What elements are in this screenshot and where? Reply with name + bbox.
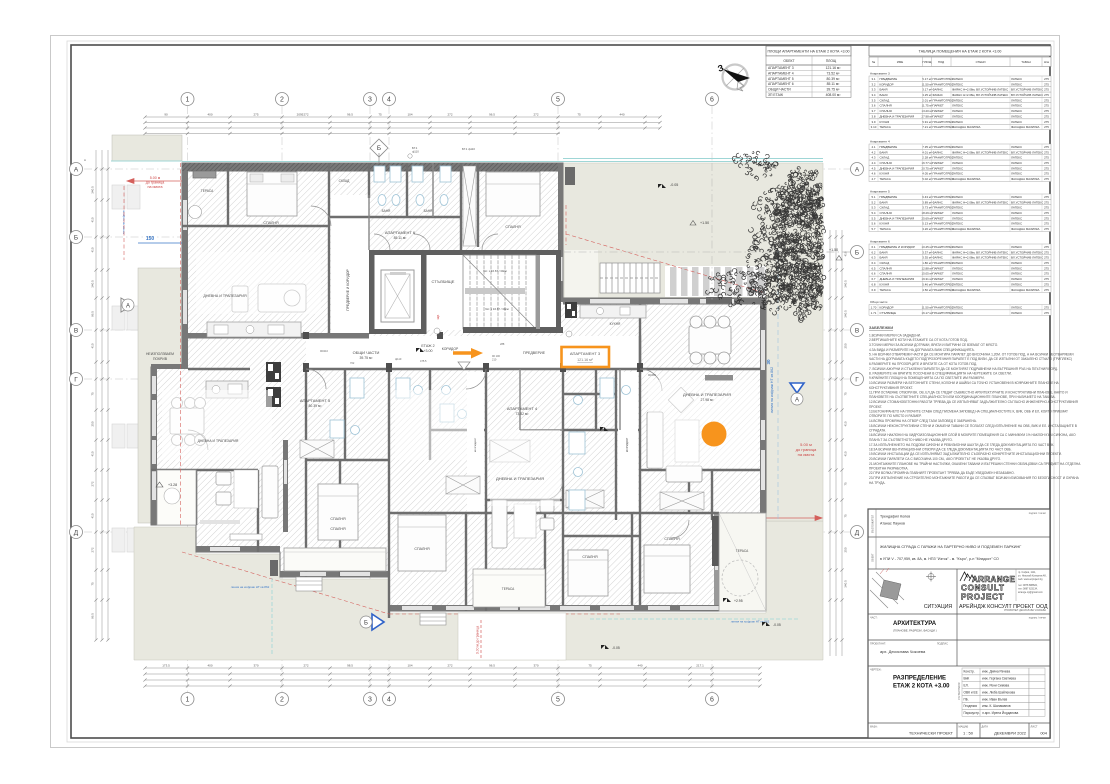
svg-text:6.1: 6.1 (871, 245, 875, 249)
svg-text:ФАЯНС: ФАЯНС (933, 150, 943, 154)
svg-text:Б: Б (377, 145, 381, 152)
svg-text:1: 1 (186, 97, 190, 104)
svg-text:16.ВСИЧКИ НАКЛОНИ НА ХИДРОИЗОЛ: 16.ВСИЧКИ НАКЛОНИ НА ХИДРОИЗОЛАЦИОННИЯ С… (869, 433, 1076, 437)
svg-text:1 : 50: 1 : 50 (963, 731, 974, 736)
svg-text:ЛАТЕКС: ЛАТЕКС (952, 120, 963, 124)
svg-text:ТЕРАСА: ТЕРАСА (736, 549, 749, 553)
svg-text:ДНЕВНА И ТРАПЕЗАРИЯ: ДНЕВНА И ТРАПЕЗАРИЯ (880, 216, 915, 220)
svg-text:ПОД: ПОД (938, 60, 944, 64)
svg-text:-0.05: -0.05 (612, 646, 620, 650)
svg-text:ГРАНИТОГРЕС: ГРАНИТОГРЕС (933, 77, 954, 81)
svg-text:11.ПРИ ОСТАВЯНЕ ОТВОРИ ВК, ОВ,: 11.ПРИ ОСТАВЯНЕ ОТВОРИ ВК, ОВ, ЕЛ ДА СЕ … (869, 391, 1068, 395)
svg-text:ЛАТЕКС: ЛАТЕКС (1011, 195, 1022, 199)
svg-text:АПАРТАМЕНТ 4: АПАРТАМЕНТ 4 (507, 406, 538, 411)
svg-text:5.02 м²: 5.02 м² (922, 177, 931, 181)
svg-text:ДНЕВНА И ТРАПЕЗАРИЯ: ДНЕВНА И ТРАПЕЗАРИЯ (880, 114, 915, 118)
svg-text:+1.50: +1.50 (829, 248, 838, 252)
svg-text:ЛАТЕКС: ЛАТЕКС (1011, 82, 1022, 86)
svg-text:410: 410 (91, 451, 95, 456)
svg-text:6.РАЗМЕРИТЕ НА ПРОЗОРЦИТЕ И ВР: 6.РАЗМЕРИТЕ НА ПРОЗОРЦИТЕ И ВРАТИТЕ СА О… (869, 362, 977, 366)
svg-text:250: 250 (844, 547, 848, 552)
svg-text:150: 150 (146, 236, 155, 242)
svg-text:121.16 м²: 121.16 м² (577, 358, 593, 362)
svg-text:ПАРКЕТ: ПАРКЕТ (933, 266, 945, 270)
svg-text:НЕИЗПОЛЗВАЕМ: НЕИЗПОЛЗВАЕМ (146, 352, 174, 356)
svg-text:275: 275 (1044, 145, 1049, 149)
svg-text:272: 272 (91, 481, 95, 486)
svg-text:8. РАЗМЕРИТЕ НА ВРАТИТЕ ПОСОЧЕ: 8. РАЗМЕРИТЕ НА ВРАТИТЕ ПОСОЧЕНИ В СПЕЦИ… (869, 372, 1012, 376)
svg-text:ПЛАНОВЕТЕ НА СЪОТВЕТНИТЕ СПЕЦИ: ПЛАНОВЕТЕ НА СЪОТВЕТНИТЕ СПЕЦИАЛНОСТИ ИЛ… (869, 395, 1056, 399)
svg-text:475.5: 475.5 (420, 359, 427, 363)
svg-text:ВЛ.УСТОЙЧИВ ЛАТЕКС: ВЛ.УСТОЙЧИВ ЛАТЕКС (1011, 200, 1043, 204)
svg-text:ПРЕДВЕРИЕ: ПРЕДВЕРИЕ (880, 77, 898, 81)
svg-text:7. ВСИЧКИ АЖУРНИ И СТЪКЛЕНИ ПА: 7. ВСИЧКИ АЖУРНИ И СТЪКЛЕНИ ПАРАПЕТИ ДА … (869, 367, 1058, 371)
svg-text:-0.05: -0.05 (670, 183, 678, 187)
svg-text:ГРАНИТОГРЕС: ГРАНИТОГРЕС (933, 195, 954, 199)
svg-text:Г: Г (74, 377, 78, 384)
svg-text:4.3: 4.3 (871, 156, 875, 160)
svg-text:КУХНЯ: КУХНЯ (880, 282, 890, 286)
svg-text:СПАЛНЯ: СПАЛНЯ (263, 221, 279, 225)
svg-text:20.ВСИЧКИ ПАРАПЕТИ СА С ВИСОЧИ: 20.ВСИЧКИ ПАРАПЕТИ СА С ВИСОЧИНА 100 СМ.… (869, 457, 1001, 461)
svg-text:400: 400 (207, 664, 212, 668)
svg-text:272: 272 (533, 113, 538, 117)
svg-text:АПАРТАМЕНТ 5: АПАРТАМЕНТ 5 (300, 398, 331, 403)
svg-text:96.5: 96.5 (347, 113, 353, 117)
svg-text:250: 250 (844, 343, 848, 348)
svg-text:ПАРКЕТ: ПАРКЕТ (933, 216, 945, 220)
svg-text:275: 275 (1044, 245, 1049, 249)
svg-text:ДНЕВНА И ТРАПЕЗАРИЯ: ДНЕВНА И ТРАПЕЗАРИЯ (198, 439, 239, 443)
svg-text:1.71: 1.71 (871, 311, 877, 315)
svg-text:75: 75 (844, 514, 848, 518)
svg-text:11.75 м²: 11.75 м² (922, 104, 933, 108)
svg-text:БАНЯ: БАНЯ (880, 88, 888, 92)
svg-text:ДЕКЕМВРИ 2022: ДЕКЕМВРИ 2022 (994, 731, 1027, 736)
svg-text:5.13 м²: 5.13 м² (922, 222, 931, 226)
svg-text:75: 75 (844, 482, 848, 486)
svg-text:ГРАНИТОГРЕС: ГРАНИТОГРЕС (933, 288, 954, 292)
svg-text:БГ.1 ф110: БГ.1 ф110 (462, 147, 475, 151)
svg-text:16.77 м²: 16.77 м² (922, 161, 933, 165)
svg-text:ЛАТЕКС: ЛАТЕКС (952, 305, 963, 309)
svg-text:№: № (872, 60, 875, 64)
svg-text:702: 702 (350, 361, 355, 365)
svg-text:ЛАТЕКС: ЛАТЕКС (952, 311, 963, 315)
svg-text:ПРЕДВЕРИЕ: ПРЕДВЕРИЕ (523, 351, 546, 355)
svg-text:30: 30 (766, 359, 771, 365)
svg-text:ПАРКЕТ: ПАРКЕТ (933, 104, 945, 108)
svg-text:370: 370 (533, 664, 538, 668)
svg-text:ДНЕВНА И ТРАПЕЗАРИЯ: ДНЕВНА И ТРАПЕЗАРИЯ (683, 392, 731, 397)
svg-text:275: 275 (1044, 172, 1049, 176)
svg-text:+2.95: +2.95 (734, 599, 743, 603)
svg-text:ДНЕВНА И ТРАПЕЗАРИЯ: ДНЕВНА И ТРАПЕЗАРИЯ (880, 277, 915, 281)
svg-text:ЛАТЕКС: ЛАТЕКС (1011, 172, 1022, 176)
svg-text:СИТУАЦИЯ: СИТУАЦИЯ (924, 604, 953, 610)
svg-text:275: 275 (1044, 114, 1049, 118)
svg-text:СГРАДАТА.: СГРАДАТА. (869, 429, 886, 433)
svg-text:подпис / печат: подпис / печат (1029, 616, 1047, 620)
svg-text:75: 75 (378, 113, 382, 117)
svg-text:272: 272 (303, 113, 308, 117)
svg-text:ГРАНИТОГРЕС: ГРАНИТОГРЕС (933, 82, 954, 86)
svg-text:98.5: 98.5 (347, 664, 353, 668)
svg-text:16.17 м²: 16.17 м² (922, 311, 933, 315)
svg-text:ПЛАНЪТ ЗА СЪОТВЕТНОТО НИВО НЕ: ПЛАНЪТ ЗА СЪОТВЕТНОТО НИВО НЕ УКАЗВА ДРУ… (869, 438, 953, 442)
svg-text:5: 5 (556, 697, 560, 704)
svg-text:ФАЯНС: ФАЯНС (933, 256, 943, 260)
svg-text:275: 275 (1044, 261, 1049, 265)
svg-text:ЕТАЖ 2: ЕТАЖ 2 (421, 344, 434, 348)
svg-text:ПЛОЩИ АПАРТАМЕНТИ НА ЕТАЖ 2 К: ПЛОЩИ АПАРТАМЕНТИ НА ЕТАЖ 2 КОТА +3.00 (767, 50, 849, 54)
svg-text:ЛАТЕКС: ЛАТЕКС (952, 216, 963, 220)
svg-text:ОТВОРИТЕ ПО МЯСТО И РАЗМЕР.: ОТВОРИТЕ ПО МЯСТО И РАЗМЕР. (869, 414, 922, 418)
svg-text:370: 370 (253, 664, 258, 668)
svg-text:ФАСАДНА МАЗИЛКА: ФАСАДНА МАЗИЛКА (1011, 288, 1040, 292)
svg-text:РАЗПРЕДЕЛЕНИЕ: РАЗПРЕДЕЛЕНИЕ (893, 676, 946, 682)
svg-text:15.05 м²: 15.05 м² (922, 272, 933, 276)
svg-text:СПАЛНЯ: СПАЛНЯ (330, 517, 346, 521)
svg-text:ФАЯНС: ФАЯНС (933, 250, 943, 254)
svg-text:АРХИТЕКТУРА: АРХИТЕКТУРА (893, 621, 937, 627)
svg-text:5.46 м²: 5.46 м² (922, 282, 931, 286)
svg-text:4.6: 4.6 (871, 172, 875, 176)
svg-text:90 100: 90 100 (492, 354, 500, 358)
svg-text:ГРАНИТОГРЕС: ГРАНИТОГРЕС (933, 282, 954, 286)
svg-text:ТЕРАСА: ТЕРАСА (880, 227, 891, 231)
svg-text:73.52 м²: 73.52 м² (827, 71, 841, 75)
svg-text:410: 410 (844, 421, 848, 426)
svg-text:инж. Рени Симова: инж. Рени Симова (982, 684, 1009, 688)
svg-text:ВЛ.УСТОЙЧИВ ЛАТЕКС: ВЛ.УСТОЙЧИВ ЛАТЕКС (1011, 93, 1043, 97)
svg-text:СПАЛНЯ: СПАЛНЯ (880, 104, 892, 108)
svg-text:1.70: 1.70 (871, 305, 877, 309)
svg-text:340.5: 340.5 (844, 580, 848, 588)
svg-text:408.00 м²: 408.00 м² (826, 93, 842, 97)
svg-text:инж. Иван Вълев: инж. Иван Вълев (982, 697, 1008, 701)
svg-text:ЧАСТИ НА ДОГРАМАТА КЪДЕТО ПОДП: ЧАСТИ НА ДОГРАМАТА КЪДЕТО ПОДПРОЗОРЕЧНИЯ… (869, 357, 1072, 361)
svg-text:ГРАНИТОГРЕС: ГРАНИТОГРЕС (933, 206, 954, 210)
svg-text:ГРАНИТОГРЕС: ГРАНИТОГРЕС (933, 311, 954, 315)
svg-text:ГРАНИТОГРЕС: ГРАНИТОГРЕС (933, 305, 954, 309)
svg-text:5.1: 5.1 (871, 195, 875, 199)
svg-text:15.ВСИЧКИ НЕКОНСТРУКТИВНИ СТЕН: 15.ВСИЧКИ НЕКОНСТРУКТИВНИ СТЕНИ И ОКАЧЕН… (869, 424, 1077, 428)
svg-text:3.17 м²: 3.17 м² (922, 88, 931, 92)
svg-text:5. НА ВСИЧКИ ОТВАРЯЕМИ ЧАСТИ Д: 5. НА ВСИЧКИ ОТВАРЯЕМИ ЧАСТИ ДА СЕ МОНТИ… (869, 353, 1074, 357)
svg-text:ОБЕКТ: ОБЕКТ (783, 59, 794, 63)
svg-text:ПОДПИС: ПОДПИС (937, 642, 948, 646)
svg-text:Атанас Паунов: Атанас Паунов (880, 522, 905, 526)
svg-text:ВЛ.УСТОЙЧИВ ЛАТЕКС: ВЛ.УСТОЙЧИВ ЛАТЕКС (1011, 150, 1043, 154)
svg-text:А: А (74, 167, 79, 174)
svg-text:ПЛОЩ: ПЛОЩ (923, 60, 932, 64)
svg-text:ПАРКЕТ: ПАРКЕТ (933, 161, 945, 165)
svg-text:+1.50: +1.50 (700, 221, 709, 225)
svg-text:Б: Б (364, 621, 368, 627)
svg-text:272: 272 (447, 113, 452, 117)
svg-text:85.11 м²: 85.11 м² (827, 82, 841, 86)
svg-text:АПАРТАМЕНТ 3: АПАРТАМЕНТ 3 (570, 351, 601, 356)
svg-text:39.75 м²: 39.75 м² (827, 88, 841, 92)
svg-text:ф110: ф110 (412, 150, 419, 154)
svg-text:ПАРКЕТ: ПАРКЕТ (933, 211, 945, 215)
svg-text:Трендафил Колев: Трендафил Колев (880, 515, 910, 519)
svg-text:275: 275 (1044, 88, 1049, 92)
svg-text:ЕЛ.: ЕЛ. (964, 684, 969, 688)
svg-text:ОБЩИ ЧАСТИ: ОБЩИ ЧАСТИ (353, 350, 380, 355)
svg-text:ПАРКЕТ: ПАРКЕТ (933, 166, 945, 170)
svg-text:СПАЛНЯ: СПАЛНЯ (880, 272, 892, 276)
svg-text:А: А (84, 158, 86, 162)
svg-text:СПАЛНЯ: СПАЛНЯ (880, 161, 892, 165)
svg-text:275: 275 (1044, 125, 1049, 129)
svg-text:3.25 м²: 3.25 м² (922, 93, 931, 97)
svg-text:ЛАТЕКС: ЛАТЕКС (1011, 109, 1022, 113)
svg-text:КУХНЯ: КУХНЯ (880, 172, 890, 176)
svg-text:3.89 м²: 3.89 м² (922, 200, 931, 204)
svg-text:СКЛАД: СКЛАД (880, 261, 890, 265)
svg-text:В: В (74, 328, 78, 335)
svg-text:3.7: 3.7 (871, 109, 875, 113)
svg-text:ПОКРИВ: ПОКРИВ (153, 357, 168, 361)
svg-text:73.52 м²: 73.52 м² (516, 412, 530, 416)
svg-text:275: 275 (1044, 109, 1049, 113)
svg-text:3.8: 3.8 (871, 114, 875, 118)
svg-text:6.3: 6.3 (871, 256, 875, 260)
svg-text:ЛАТЕКС: ЛАТЕКС (952, 77, 963, 81)
svg-text:АПАРТАМЕНТ 6: АПАРТАМЕНТ 6 (385, 230, 416, 235)
svg-text:ЖИЛИЩНА СГРАДА С ГАРАЖИ НА ПА: ЖИЛИЩНА СГРАДА С ГАРАЖИ НА ПАРТЕРНО НИВО… (880, 545, 1021, 549)
svg-text:инж. Дияна Рачева: инж. Дияна Рачева (982, 670, 1010, 674)
svg-text:5.6: 5.6 (871, 222, 875, 226)
svg-text:2.ВЕРТИКАЛНИТЕ КОТИ НА ЕТАЖИТЕ: 2.ВЕРТИКАЛНИТЕ КОТИ НА ЕТАЖИТЕ СА ОТ КОТ… (869, 338, 968, 342)
svg-text:АПАРТАМЕНТ 6: АПАРТАМЕНТ 6 (768, 82, 794, 86)
svg-text:ЛАТЕКС: ЛАТЕКС (1011, 114, 1022, 118)
svg-text:ЛАТЕКС: ЛАТЕКС (952, 282, 963, 286)
svg-text:АПАРТАМЕНТ 5: АПАРТАМЕНТ 5 (768, 77, 794, 81)
svg-text:ЛАТЕКС: ЛАТЕКС (1011, 104, 1022, 108)
svg-text:подпис / печат: подпис / печат (1029, 511, 1047, 515)
svg-text:УПРАВИТЕЛ: ДЕСИСЛАВА ЧОКОЕВА: УПРАВИТЕЛ: ДЕСИСЛАВА ЧОКОЕВА (1004, 609, 1047, 612)
svg-text:275: 275 (1044, 166, 1049, 170)
svg-text:ЛАТЕКС: ЛАТЕКС (952, 172, 963, 176)
svg-text:400: 400 (207, 113, 212, 117)
svg-text:ЛАТЕКС: ЛАТЕКС (952, 166, 963, 170)
svg-text:КОРИДОР: КОРИДОР (442, 347, 459, 351)
svg-text:6.5: 6.5 (871, 266, 875, 270)
svg-text:ФАЯНС Н=2.08м, ВЛ.УСТОЙЧИВ ЛАТ: ФАЯНС Н=2.08м, ВЛ.УСТОЙЧИВ ЛАТЕКС (952, 88, 1008, 92)
svg-text:004: 004 (1040, 731, 1047, 736)
svg-text:410: 410 (844, 451, 848, 456)
svg-text:PROJECT: PROJECT (961, 593, 1004, 602)
svg-text:275: 275 (1044, 200, 1049, 204)
svg-text:ЛАТЕКС: ЛАТЕКС (952, 114, 963, 118)
svg-text:275: 275 (1044, 277, 1049, 281)
svg-text:СПАЛНЯ: СПАЛНЯ (330, 527, 346, 531)
svg-text:4.7: 4.7 (871, 177, 875, 181)
svg-text:ЛАТЕКС: ЛАТЕКС (952, 82, 963, 86)
svg-text:СТЪЛБИЩЕ: СТЪЛБИЩЕ (880, 311, 897, 315)
svg-text:4.4: 4.4 (871, 161, 875, 165)
svg-text:340.5: 340.5 (91, 280, 95, 288)
svg-text:19.ВСИЧКИ ИНСТАЛАЦИИ ДА СЕ ИЗП: 19.ВСИЧКИ ИНСТАЛАЦИИ ДА СЕ ИЗПЪЛНЯВАТ ЗА… (869, 452, 1062, 456)
svg-text:ЧАСТ:: ЧАСТ: (870, 616, 878, 620)
svg-text:4.01 м²: 4.01 м² (922, 150, 931, 154)
svg-text:6.6: 6.6 (871, 272, 875, 276)
svg-text:ТЕХНИЧЕСКИ ПРОЕКТ: ТЕХНИЧЕСКИ ПРОЕКТ (909, 731, 954, 736)
svg-text:ЛАТЕКС: ЛАТЕКС (1011, 145, 1022, 149)
svg-text:275: 275 (1044, 177, 1049, 181)
svg-text:ОБЕКТ: ОБЕКТ (871, 553, 875, 562)
svg-text:ФАСАДНА МАЗИЛКА: ФАСАДНА МАЗИЛКА (952, 227, 981, 231)
svg-text:КУХНЯ: КУХНЯ (880, 120, 890, 124)
svg-text:ЗП ЕТАЖ: ЗП ЕТАЖ (768, 93, 784, 97)
svg-text:ФАСАДНА МАЗИЛКА: ФАСАДНА МАЗИЛКА (1011, 125, 1040, 129)
svg-text:27.98 м²: 27.98 м² (922, 114, 933, 118)
svg-text:75: 75 (577, 113, 581, 117)
svg-text:275: 275 (1044, 195, 1049, 199)
svg-text:СПАЛНЯ: СПАЛНЯ (664, 537, 680, 541)
svg-text:90/210: 90/210 (320, 349, 328, 353)
svg-text:6.2: 6.2 (871, 250, 875, 254)
svg-text:ПАРКЕТ: ПАРКЕТ (933, 277, 945, 281)
svg-text:КОРИДОР: КОРИДОР (625, 438, 629, 453)
svg-text:ВЛ.УСТОЙЧИВ ЛАТЕКС: ВЛ.УСТОЙЧИВ ЛАТЕКС (1011, 256, 1043, 260)
svg-text:4.2: 4.2 (871, 150, 875, 154)
svg-text:173.5: 173.5 (162, 664, 170, 668)
svg-text:ПБ.: ПБ. (964, 697, 969, 701)
svg-text:ГРАНИТОГРЕС: ГРАНИТОГРЕС (933, 177, 954, 181)
svg-text:3.73 м²: 3.73 м² (922, 206, 931, 210)
svg-text:СТЕНИ: СТЕНИ (976, 60, 986, 64)
svg-text:5.3: 5.3 (871, 206, 875, 210)
svg-text:3.35 м²: 3.35 м² (922, 256, 931, 260)
svg-text:НА ТРУДА.: НА ТРУДА. (869, 481, 885, 485)
svg-text:ФАСАДНА МАЗИЛКА: ФАСАДНА МАЗИЛКА (1011, 227, 1040, 231)
svg-text:5.4: 5.4 (871, 211, 875, 215)
svg-text:275: 275 (1044, 211, 1049, 215)
svg-text:ЛАТЕКС: ЛАТЕКС (952, 145, 963, 149)
svg-text:250: 250 (91, 421, 95, 426)
svg-text:121.16 м²: 121.16 м² (826, 66, 842, 70)
svg-text:СКЛАД: СКЛАД (339, 179, 350, 183)
svg-text:инж. Гергана Светиева: инж. Гергана Светиева (982, 677, 1016, 681)
svg-text:275: 275 (1044, 288, 1049, 292)
svg-text:ЛАТЕКС: ЛАТЕКС (1011, 98, 1022, 102)
svg-text:3.9: 3.9 (871, 120, 875, 124)
svg-text:11.50 м²: 11.50 м² (922, 305, 933, 309)
svg-text:3.4: 3.4 (871, 93, 875, 97)
svg-text:275: 275 (1044, 82, 1049, 86)
svg-text:14.ВСЯКА ПРОМЯНА НА ОТВОР СЛЕД: 14.ВСЯКА ПРОМЯНА НА ОТВОР СЛЕД ТАЗИ ЗАПО… (869, 419, 977, 423)
svg-text:340.5: 340.5 (844, 280, 848, 288)
svg-text:18.29 м²: 18.29 м² (922, 211, 933, 215)
svg-text:СПАЛНЯ: СПАЛНЯ (582, 555, 598, 559)
svg-text:ЛАТЕКС: ЛАТЕКС (952, 266, 963, 270)
svg-text:ТАБЛИЦА ПОМЕЩЕНИЯ НА ЕТАЖ 2 К: ТАБЛИЦА ПОМЕЩЕНИЯ НА ЕТАЖ 2 КОТА +3.00 (919, 50, 1002, 54)
svg-text:1: 1 (186, 697, 190, 704)
svg-text:90/185: 90/185 (648, 373, 656, 377)
svg-text:ЛАТЕКС: ЛАТЕКС (952, 161, 963, 165)
svg-text:6: 6 (710, 97, 714, 104)
svg-text:ПРЕДВЕРИЕ И КОРИДОР: ПРЕДВЕРИЕ И КОРИДОР (346, 268, 350, 310)
svg-text:3.1: 3.1 (871, 77, 875, 81)
svg-text:АПАРТАМЕНТ 3: АПАРТАМЕНТ 3 (768, 66, 794, 70)
svg-text:web: www.acproject.bg: web: www.acproject.bg (1018, 578, 1043, 581)
svg-text:3.3: 3.3 (871, 88, 875, 92)
svg-text:Г: Г (855, 377, 859, 384)
svg-text:АПАРТАМЕНТ 4: АПАРТАМЕНТ 4 (768, 71, 794, 75)
svg-text:2.28 м²: 2.28 м² (922, 156, 931, 160)
svg-text:5.17 м²: 5.17 м² (922, 77, 931, 81)
svg-text:3: 3 (368, 697, 372, 704)
svg-text:80.39 м²: 80.39 м² (827, 77, 841, 81)
svg-text:в УПИ V - 707,959, кв. 8А, м.: в УПИ V - 707,959, кв. 8А, м. НПЗ "Изток… (880, 557, 999, 561)
svg-text:+3.00: +3.00 (423, 349, 432, 353)
svg-text:9ст. x 16.67 / 30см: 9ст. x 16.67 / 30см (485, 307, 508, 311)
svg-text:440: 440 (619, 113, 624, 117)
svg-text:ЛАТЕКС: ЛАТЕКС (952, 211, 963, 215)
svg-text:90: 90 (164, 113, 168, 117)
svg-text:ГРАНИТОГРЕС: ГРАНИТОГРЕС (933, 222, 954, 226)
svg-text:ФАСАДНА МАЗИЛКА: ФАСАДНА МАЗИЛКА (1011, 177, 1040, 181)
svg-text:ВЛ.УСТОЙЧИВ ЛАТЕКС: ВЛ.УСТОЙЧИВ ЛАТЕКС (1011, 250, 1043, 254)
svg-text:БАНЯ: БАНЯ (880, 150, 888, 154)
svg-text:7.21 м²: 7.21 м² (922, 125, 931, 129)
svg-text:275: 275 (1044, 150, 1049, 154)
svg-text:ЛАТЕКС: ЛАТЕКС (952, 277, 963, 281)
svg-text:Общи части: Общи части (870, 300, 888, 304)
svg-text:ГРАНИТОГРЕС: ГРАНИТОГРЕС (933, 156, 954, 160)
svg-text:210: 210 (492, 358, 497, 362)
svg-text:3.6: 3.6 (871, 104, 875, 108)
svg-text:ЛАТЕКС: ЛАТЕКС (1011, 211, 1022, 215)
svg-text:ЛАТЕКС: ЛАТЕКС (1011, 77, 1022, 81)
svg-text:ПАРКЕТ: ПАРКЕТ (933, 114, 945, 118)
svg-text:ЛАТЕКС: ЛАТЕКС (1011, 166, 1022, 170)
svg-text:440: 440 (637, 664, 642, 668)
svg-text:4.ЗА ВИДА И РАЗМЕРИТЕ НА ДОГРА: 4.ЗА ВИДА И РАЗМЕРИТЕ НА ДОГРАМАТА ВИЖ С… (869, 348, 975, 352)
svg-text:ЛАТЕКС: ЛАТЕКС (1011, 156, 1022, 160)
svg-text:21.МОНТАЖНИТЕ ПЛАНОВЕ НА ТРАЙН: 21.МОНТАЖНИТЕ ПЛАНОВЕ НА ТРАЙНИ НАСТИЛКИ… (869, 462, 1081, 466)
svg-text:СПАЛНЯ: СПАЛНЯ (414, 547, 430, 551)
svg-text:75: 75 (91, 582, 95, 586)
svg-text:1.ВСИЧКИ МЕРКИ СА ЗАДАДЕНИ.: 1.ВСИЧКИ МЕРКИ СА ЗАДАДЕНИ. (869, 334, 921, 338)
svg-text:ИМЕ: ИМЕ (897, 60, 903, 64)
svg-text:ЛАТЕКС: ЛАТЕКС (1011, 272, 1022, 276)
svg-text:-0.05: -0.05 (773, 623, 781, 627)
svg-text:13.20 м²: 13.20 м² (922, 109, 933, 113)
svg-text:6.9: 6.9 (871, 288, 875, 292)
svg-text:ЩБ: ЩБ (436, 315, 440, 320)
svg-text:3.ТОЧНИ МЕРКИ ЗА ВСИЧКИ ДОГРАМ: 3.ТОЧНИ МЕРКИ ЗА ВСИЧКИ ДОГРАМИ, ВРАТИ И… (869, 343, 998, 347)
svg-text:ТАВАН: ТАВАН (1021, 60, 1030, 64)
svg-text:ПРЕДВЕРИЕ: ПРЕДВЕРИЕ (880, 145, 898, 149)
svg-text:5.7: 5.7 (871, 227, 875, 231)
svg-text:340.5: 340.5 (844, 310, 848, 318)
svg-text:6.4: 6.4 (871, 261, 875, 265)
svg-text:25.69 м²: 25.69 м² (922, 216, 933, 220)
svg-text:ГРАНИТОГРЕС: ГРАНИТОГРЕС (933, 145, 954, 149)
svg-text:217.1: 217.1 (696, 664, 704, 668)
svg-text:ДНЕВНА И ТРАПЕЗАРИЯ: ДНЕВНА И ТРАПЕЗАРИЯ (203, 294, 247, 298)
svg-text:ЛАТЕКС: ЛАТЕКС (1011, 277, 1022, 281)
svg-text:Паркоустр.: Паркоустр. (964, 711, 980, 715)
svg-text:ЛАТЕКС: ЛАТЕКС (1011, 206, 1022, 210)
svg-text:КУХНЯ: КУХНЯ (880, 222, 890, 226)
svg-text:линия на кофраж НТ кв.862: линия на кофраж НТ кв.862 (231, 585, 270, 589)
